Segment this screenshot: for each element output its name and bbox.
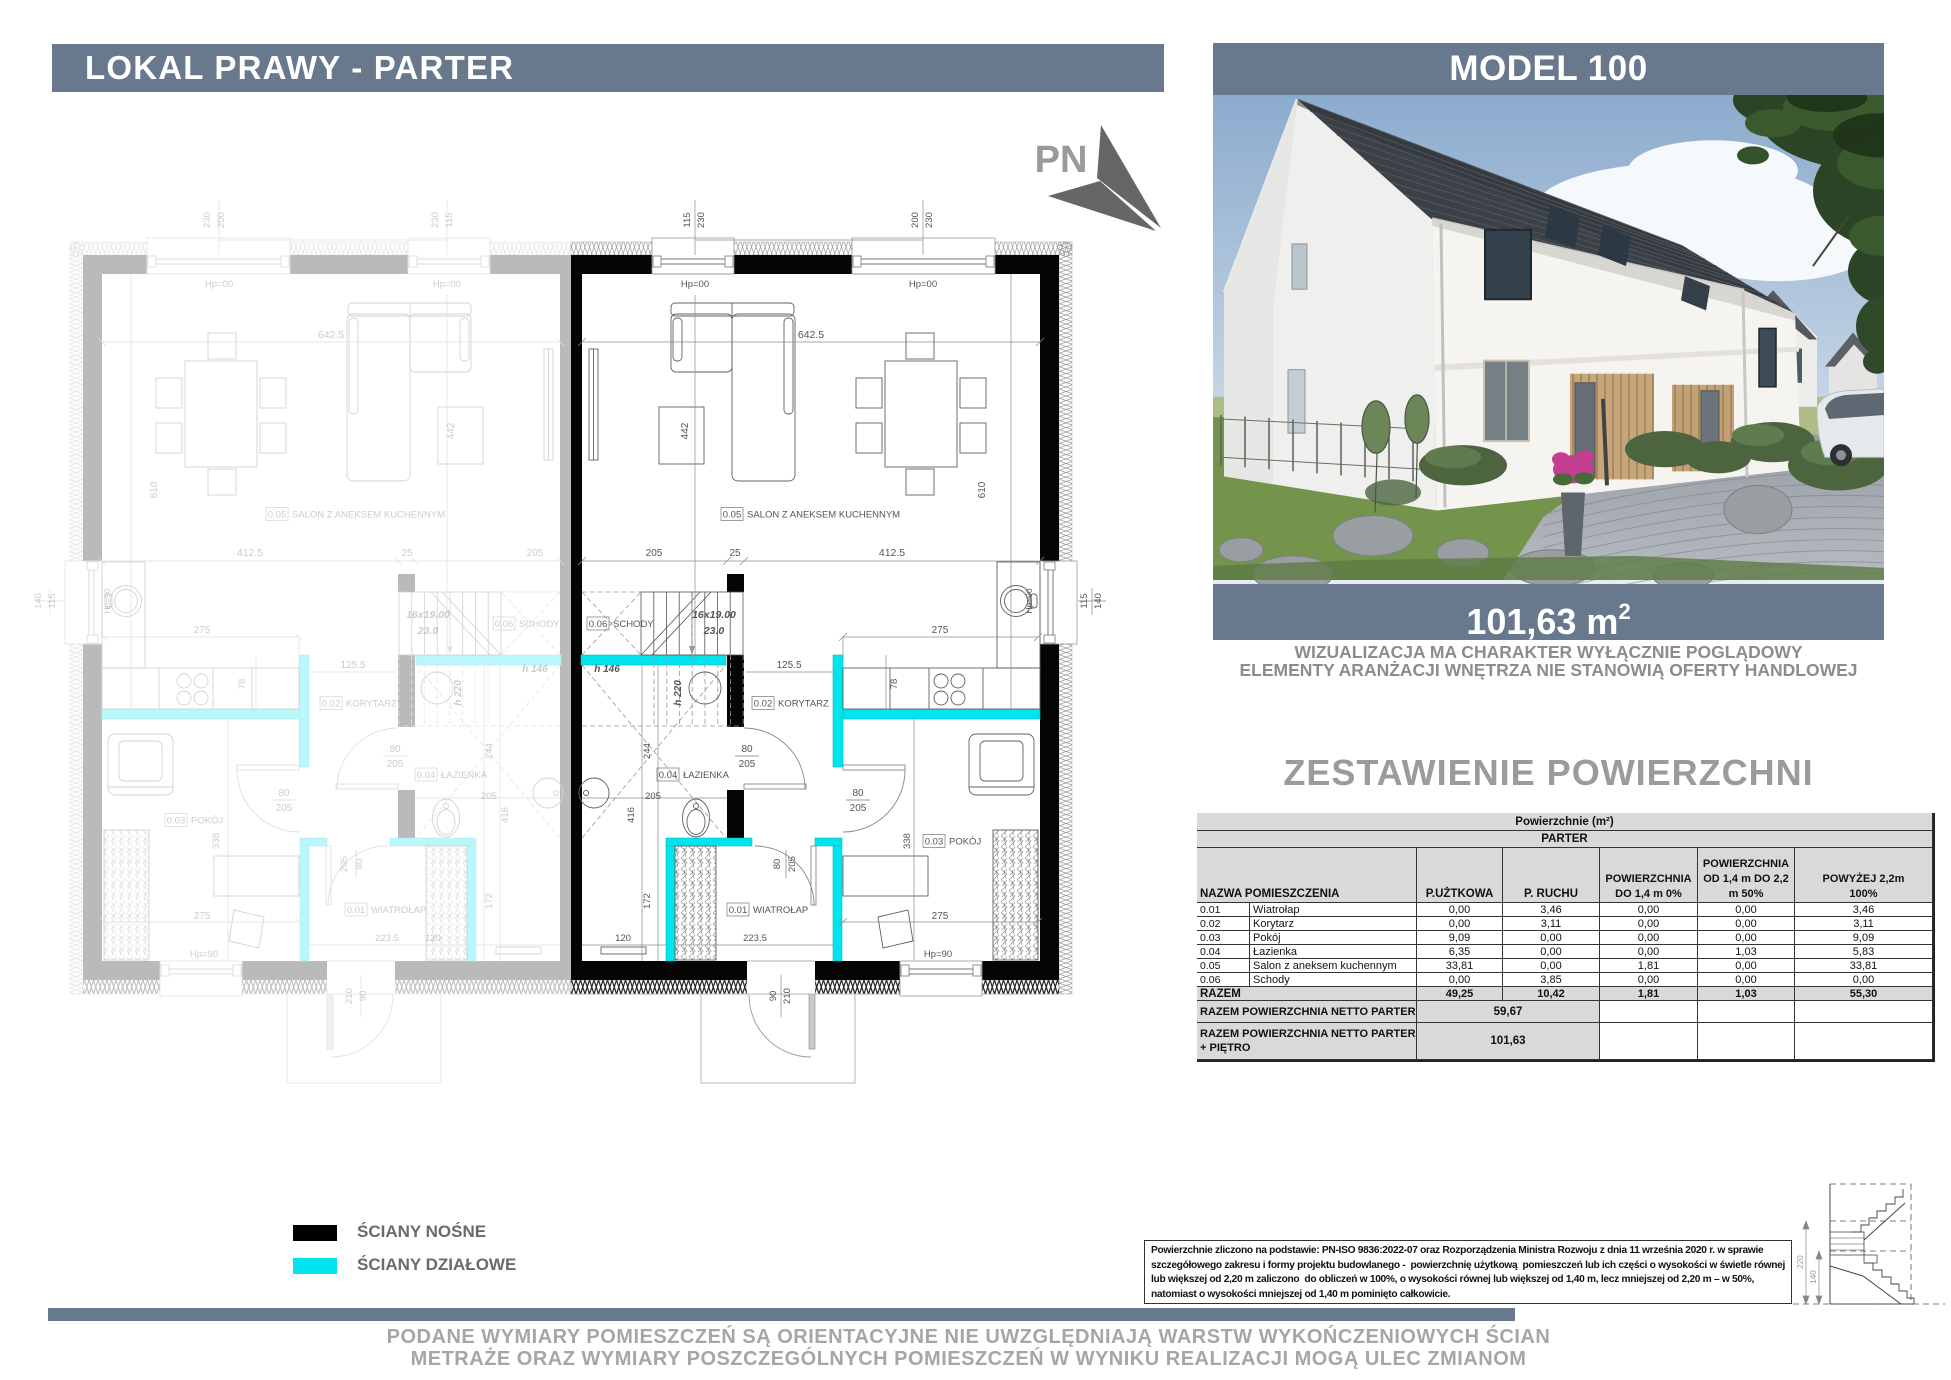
svg-text:244: 244 <box>484 743 495 759</box>
svg-text:h 220: h 220 <box>453 680 464 706</box>
svg-text:h 146: h 146 <box>522 664 548 675</box>
svg-text:205: 205 <box>527 548 544 559</box>
svg-text:78: 78 <box>889 679 900 690</box>
svg-text:80: 80 <box>852 788 864 799</box>
svg-text:Hp=90: Hp=90 <box>102 588 112 614</box>
svg-text:120: 120 <box>425 933 441 944</box>
svg-text:80: 80 <box>278 788 290 799</box>
svg-text:125.5: 125.5 <box>340 660 365 671</box>
svg-text:0.02: 0.02 <box>754 699 773 710</box>
svg-text:0.01: 0.01 <box>347 905 366 916</box>
svg-text:442: 442 <box>446 422 457 439</box>
svg-text:0.02: 0.02 <box>322 699 341 710</box>
svg-text:230: 230 <box>202 212 213 228</box>
svg-text:115: 115 <box>444 212 455 227</box>
svg-text:140: 140 <box>33 593 44 609</box>
svg-text:25: 25 <box>729 548 741 559</box>
svg-text:205: 205 <box>850 803 867 814</box>
svg-text:210: 210 <box>782 988 793 1004</box>
svg-text:90: 90 <box>768 991 779 1002</box>
svg-text:205: 205 <box>481 791 497 802</box>
svg-text:Hp=00: Hp=00 <box>205 279 233 290</box>
svg-text:0.01: 0.01 <box>729 905 748 916</box>
svg-text:205: 205 <box>387 759 404 770</box>
svg-text:140: 140 <box>1093 593 1104 609</box>
svg-text:0.06: 0.06 <box>495 619 514 630</box>
svg-text:115: 115 <box>1079 593 1090 608</box>
svg-text:WIATROŁAP: WIATROŁAP <box>753 905 808 916</box>
svg-text:338: 338 <box>902 833 913 849</box>
svg-text:23.0: 23.0 <box>417 625 439 637</box>
svg-text:25: 25 <box>401 548 413 559</box>
svg-text:610: 610 <box>149 481 160 498</box>
svg-text:205: 205 <box>645 791 661 802</box>
svg-text:275: 275 <box>932 625 949 636</box>
svg-text:0.03: 0.03 <box>925 837 944 848</box>
svg-text:80: 80 <box>389 744 401 755</box>
svg-text:230: 230 <box>696 212 707 228</box>
svg-text:125.5: 125.5 <box>776 660 801 671</box>
svg-text:h 220: h 220 <box>673 680 684 706</box>
svg-text:412.5: 412.5 <box>879 547 905 559</box>
svg-text:210: 210 <box>344 988 355 1004</box>
svg-text:ŁAZIENKA: ŁAZIENKA <box>683 770 730 781</box>
svg-text:80: 80 <box>772 859 783 870</box>
svg-text:16x19.00: 16x19.00 <box>692 609 736 621</box>
svg-text:POKÓJ: POKÓJ <box>191 816 223 827</box>
svg-text:0.05: 0.05 <box>723 510 742 521</box>
svg-text:Hp=90: Hp=90 <box>190 949 218 960</box>
svg-text:205: 205 <box>339 856 350 872</box>
svg-text:223.5: 223.5 <box>375 933 399 944</box>
svg-text:SCHODY: SCHODY <box>613 619 654 630</box>
svg-text:23.0: 23.0 <box>703 625 725 637</box>
svg-text:140: 140 <box>1809 1270 1818 1284</box>
svg-text:172: 172 <box>484 893 495 909</box>
svg-text:205: 205 <box>646 548 663 559</box>
svg-text:h 146: h 146 <box>594 664 620 675</box>
svg-text:642.5: 642.5 <box>318 329 344 341</box>
svg-text:275: 275 <box>194 625 211 636</box>
svg-text:442: 442 <box>680 422 691 439</box>
svg-text:90: 90 <box>358 991 369 1002</box>
svg-text:80: 80 <box>741 744 753 755</box>
svg-text:338: 338 <box>211 833 222 849</box>
svg-text:POKÓJ: POKÓJ <box>949 837 981 848</box>
svg-text:275: 275 <box>932 911 949 922</box>
svg-text:412.5: 412.5 <box>237 547 263 559</box>
svg-text:200: 200 <box>216 212 227 228</box>
svg-text:SCHODY: SCHODY <box>519 619 560 630</box>
svg-text:0.05: 0.05 <box>268 510 287 521</box>
svg-text:275: 275 <box>194 911 211 922</box>
svg-text:KORYTARZ: KORYTARZ <box>778 699 829 710</box>
svg-text:0.06: 0.06 <box>589 619 608 630</box>
svg-text:220: 220 <box>1796 1255 1805 1269</box>
svg-text:78: 78 <box>237 679 248 690</box>
svg-text:223.5: 223.5 <box>743 933 767 944</box>
svg-text:0.03: 0.03 <box>167 816 186 827</box>
svg-text:205: 205 <box>276 803 293 814</box>
svg-text:0.04: 0.04 <box>659 770 678 781</box>
svg-text:416: 416 <box>626 807 637 823</box>
svg-text:Hp=00: Hp=00 <box>909 279 937 290</box>
svg-text:SALON Z ANEKSEM KUCHENNYM: SALON Z ANEKSEM KUCHENNYM <box>747 510 900 521</box>
svg-text:ŁAZIENKA: ŁAZIENKA <box>441 770 488 781</box>
svg-text:244: 244 <box>642 743 653 759</box>
svg-text:205: 205 <box>787 856 798 872</box>
svg-text:115: 115 <box>682 212 693 227</box>
svg-text:200: 200 <box>910 212 921 228</box>
svg-text:KORYTARZ: KORYTARZ <box>346 699 397 710</box>
svg-text:172: 172 <box>642 893 653 909</box>
svg-text:642.5: 642.5 <box>798 329 824 341</box>
svg-text:120: 120 <box>615 933 631 944</box>
svg-text:230: 230 <box>430 212 441 228</box>
svg-text:205: 205 <box>739 759 756 770</box>
svg-text:Hp=00: Hp=00 <box>433 279 461 290</box>
svg-text:WIATROŁAP: WIATROŁAP <box>371 905 426 916</box>
svg-text:416: 416 <box>500 807 511 823</box>
svg-text:16x19.00: 16x19.00 <box>406 609 450 621</box>
svg-text:230: 230 <box>924 212 935 228</box>
svg-text:115: 115 <box>47 593 58 608</box>
svg-text:SALON Z ANEKSEM KUCHENNYM: SALON Z ANEKSEM KUCHENNYM <box>292 510 445 521</box>
svg-text:PN: PN <box>1035 139 1088 181</box>
svg-text:0.04: 0.04 <box>417 770 436 781</box>
svg-text:610: 610 <box>977 481 988 498</box>
svg-text:Hp=00: Hp=00 <box>681 279 709 290</box>
svg-text:Hp=90: Hp=90 <box>924 949 952 960</box>
svg-text:Hp=90: Hp=90 <box>1024 588 1034 614</box>
